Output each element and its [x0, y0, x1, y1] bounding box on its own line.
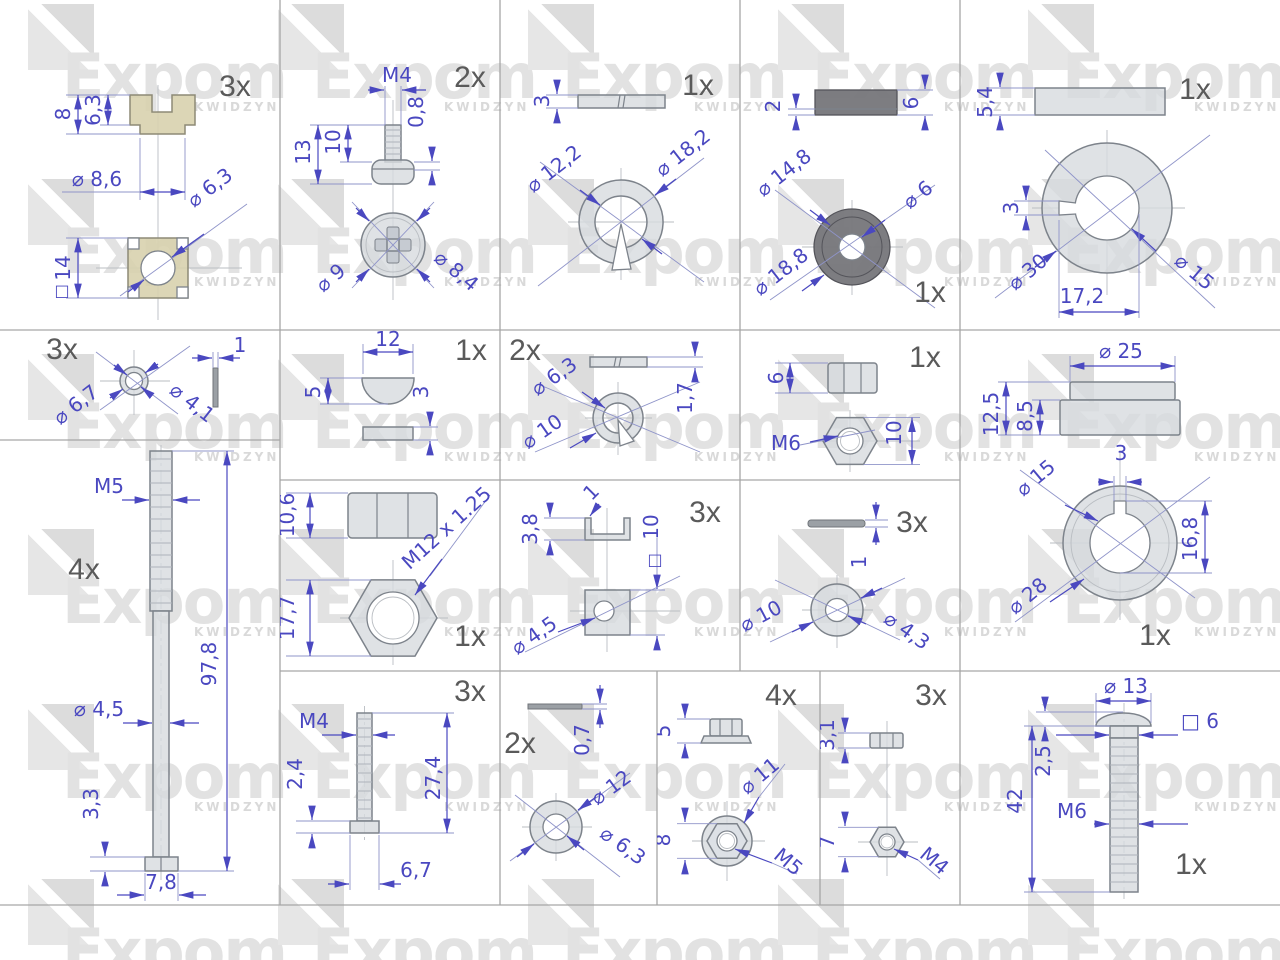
- part-views: [570, 508, 680, 652]
- quantity-label: 4x: [765, 679, 797, 712]
- dim-hole-dia: ⌀ 4,1: [165, 378, 219, 428]
- dim-thickness: 0,7: [570, 724, 594, 756]
- quantity-label: 1x: [1175, 848, 1207, 881]
- quantity-label: 1x: [909, 341, 941, 374]
- dim-thread: M5: [94, 474, 124, 498]
- dim-thickness: 1: [847, 556, 871, 569]
- drawing-spring-washer-6: ⌀ 6,3 ⌀ 10 1,7 2x: [500, 330, 740, 480]
- drawing-pan-head-screw-m4: M4 0,8 13 10 ⌀ 9 ⌀ 8,4 2x: [280, 0, 500, 330]
- dim-width: 17,2: [1060, 284, 1105, 308]
- dim-outer-dia: ⌀ 12: [586, 765, 636, 810]
- quantity-label: 2x: [454, 61, 486, 94]
- part-views: [340, 493, 448, 665]
- dim-thickness: 3: [409, 386, 433, 399]
- dim-height: 6: [764, 372, 788, 385]
- quantity-label: 2x: [504, 727, 536, 760]
- cell-spring-washer-12: 3 ⌀ 12,2 ⌀ 18,2 1x: [500, 0, 740, 330]
- drawing-long-screw-m5: M5 97,8 ⌀ 4,5 3,3 7,8 4x: [0, 440, 280, 905]
- dim-thickness: 1: [578, 480, 604, 505]
- dim-head-height: 2,5: [1031, 745, 1055, 777]
- watermark-brand: Expom: [312, 915, 536, 960]
- cell-hex-nut-m12: 10,6 17,7 M12 x 1.25 1x: [280, 480, 500, 671]
- dim-head-dia: ⌀ 9: [311, 258, 350, 296]
- drawing-spring-washer-12: 3 ⌀ 12,2 ⌀ 18,2 1x: [500, 0, 740, 330]
- dim-keyway: 3: [999, 202, 1023, 215]
- drawing-slotted-square-nut: 8 6,3 ⌀ 8,6 14 □ ⌀ 6,3 3x: [0, 0, 280, 330]
- dim-height: 5: [657, 725, 675, 738]
- quantity-label: 1x: [682, 69, 714, 102]
- quantity-label: 3x: [219, 70, 251, 103]
- part-views: [802, 90, 903, 295]
- quantity-label: 1x: [1179, 73, 1211, 106]
- part-views: [350, 706, 379, 841]
- drawing-hub-washer-25: ⌀ 25 12,5 8,5 3 ⌀ 15 16,8 ⌀ 28 1x: [960, 330, 1280, 671]
- dim-square: 10: [639, 514, 663, 539]
- dim-outer-dia: ⌀ 10: [517, 409, 567, 454]
- dim-height: 5: [301, 386, 325, 399]
- quantity-label: 3x: [896, 506, 928, 539]
- drawing-thin-washer-12: 0,7 ⌀ 12 ⌀ 6,3 2x: [500, 671, 657, 905]
- drawing-small-washer: ⌀ 6,7 ⌀ 4,1 1 3x: [0, 330, 280, 440]
- dim-thread: M6: [1057, 799, 1087, 823]
- drawing-carriage-bolt-m6: ⌀ 13 □ 6 2,5 42 M6 1x: [960, 671, 1280, 905]
- part-views: [858, 721, 918, 876]
- dim-length: 42: [1003, 788, 1027, 813]
- dim-thread: M6: [771, 431, 801, 455]
- dim-shank-dia: ⌀ 4,5: [74, 697, 124, 721]
- dim-thread: M4: [299, 709, 329, 733]
- dim-thickness: 1: [234, 333, 247, 357]
- cell-flange-nut-m5: 5 ⌀ 11 8 M5 4x: [657, 671, 820, 905]
- dim-across-flats: 17,7: [280, 596, 299, 641]
- dim-outer-dia: ⌀ 10: [740, 595, 786, 637]
- cell-hex-nut-m6: 6 M6 10 1x: [740, 330, 960, 480]
- dim-height2: 8,5: [1013, 400, 1037, 432]
- drawing-u-clip: 3,8 1 10 □ ⌀ 4,5 3x: [500, 480, 740, 671]
- dim-top-dia: ⌀ 25: [1099, 339, 1143, 363]
- cell-carriage-bolt-m6: ⌀ 13 □ 6 2,5 42 M6 1x: [960, 671, 1280, 905]
- dim-height: 10,6: [280, 493, 299, 538]
- cell-hex-nut-m4: 3,1 7 M4 3x: [820, 671, 960, 905]
- dim-head-dia: ⌀ 13: [1104, 674, 1148, 698]
- watermark-brand: Expom: [812, 915, 1036, 960]
- dim-outer-dia: ⌀ 28: [1003, 572, 1052, 619]
- watermark-brand: Expom: [562, 915, 786, 960]
- dim-hole-dia: ⌀ 4,5: [507, 611, 562, 659]
- dim-outer-dia: ⌀ 30: [1003, 248, 1052, 295]
- cell-keyed-washer-30: 5,4 3 ⌀ 30 ⌀ 15 17,2 1x: [960, 0, 1280, 330]
- watermark-brand: Expom: [62, 915, 286, 960]
- quantity-label: 3x: [689, 496, 721, 529]
- dim-head-width: 6,7: [400, 858, 432, 882]
- cell-slotted-square-nut: 8 6,3 ⌀ 8,6 14 □ ⌀ 6,3 3x: [0, 0, 280, 330]
- dim-height: 8: [51, 108, 75, 121]
- cell-pan-head-screw-m4: M4 0,8 13 10 ⌀ 9 ⌀ 8,4 2x: [280, 0, 500, 330]
- dim-hole-dia: ⌀ 6: [898, 175, 937, 213]
- part-views: [802, 520, 873, 648]
- drawing-woodruff-key: 12 5 3 1x: [280, 330, 500, 480]
- cell-flat-washer-10: 1 ⌀ 10 ⌀ 4,3 3x: [740, 480, 960, 671]
- drawing-hex-nut-m4: 3,1 7 M4 3x: [820, 671, 960, 905]
- dim-flange-dia: ⌀ 11: [735, 752, 784, 799]
- dim-height: 12,5: [979, 392, 1003, 437]
- dim-height: 6: [899, 97, 923, 110]
- dim-head-height: 2,4: [283, 758, 307, 790]
- dim-outer-dia: ⌀ 18,8: [749, 243, 813, 301]
- cell-thin-washer-12: 0,7 ⌀ 12 ⌀ 6,3 2x: [500, 671, 657, 905]
- dim-thickness: 5,4: [973, 86, 997, 118]
- dim-head-height: 3,3: [79, 788, 103, 820]
- drawing-flange-nut-m5: 5 ⌀ 11 8 M5 4x: [657, 671, 820, 905]
- cell-long-screw-m5: M5 97,8 ⌀ 4,5 3,3 7,8 4x: [0, 440, 280, 905]
- dim-hole-dia: ⌀ 6,3: [183, 163, 238, 212]
- square-symbol: □: [54, 281, 69, 300]
- quantity-label: 1x: [454, 620, 486, 653]
- dim-keyway: 3: [1115, 441, 1128, 465]
- dim-length: 13: [291, 139, 315, 164]
- dim-lip: 0,8: [404, 96, 428, 128]
- quantity-label: 1x: [914, 276, 946, 309]
- cell-rubber-bushing: 2 6 ⌀ 14,8 ⌀ 6 ⌀ 18,8 1x: [740, 0, 960, 330]
- part-views: [361, 100, 425, 300]
- dim-slot: 6,3: [81, 94, 105, 126]
- parts-drawing-sheet: ExpomKWIDZYNExpomKWIDZYNExpomKWIDZYNExpo…: [0, 0, 1280, 960]
- dim-thread: M4: [382, 63, 412, 87]
- quantity-label: 3x: [454, 675, 486, 708]
- dim-hole-dia: ⌀ 4,3: [880, 606, 935, 654]
- cell-hub-washer-25: ⌀ 25 12,5 8,5 3 ⌀ 15 16,8 ⌀ 28 1x: [960, 330, 1280, 671]
- dim-across-flats: 7: [820, 836, 839, 849]
- dim-across-flats: 8: [657, 834, 675, 847]
- cell-small-washer: ⌀ 6,7 ⌀ 4,1 1 3x: [0, 330, 280, 440]
- quantity-label: 4x: [68, 553, 100, 586]
- dim-mid-dia: ⌀ 14,8: [752, 144, 816, 202]
- quantity-label: 2x: [509, 334, 541, 367]
- drawing-flat-washer-10: 1 ⌀ 10 ⌀ 4,3 3x: [740, 480, 960, 671]
- dim-outer-dia: ⌀ 6,7: [49, 380, 103, 430]
- dim-shank: 10: [321, 129, 345, 154]
- quantity-label: 1x: [1139, 619, 1171, 652]
- dim-keyspan: 16,8: [1178, 517, 1202, 562]
- part-views: [1096, 703, 1151, 901]
- dim-hole-dia: ⌀ 6,3: [596, 821, 651, 870]
- dim-outer-dia: ⌀ 8,6: [72, 167, 122, 191]
- watermark-brand: Expom: [1062, 915, 1280, 960]
- part-views: [362, 378, 414, 440]
- dim-lip: 2: [761, 100, 785, 113]
- dim-width: 12: [375, 330, 400, 351]
- dim-length: 97,8: [197, 642, 221, 687]
- dim-across-flats: 10: [882, 420, 906, 445]
- part-views: [568, 95, 674, 280]
- dim-thread: M5: [769, 843, 807, 881]
- dim-thickness: 3: [530, 95, 554, 108]
- cell-u-clip: 3,8 1 10 □ ⌀ 4,5 3x: [500, 480, 740, 671]
- dim-outer-dia: ⌀ 18,2: [651, 124, 715, 182]
- dim-thickness: 1,7: [673, 382, 697, 414]
- cell-screw-m4-27: M4 27,4 2,4 6,7 3x: [280, 671, 500, 905]
- dim-square-neck: □ 6: [1181, 709, 1219, 733]
- drawing-screw-m4-27: M4 27,4 2,4 6,7 3x: [280, 671, 500, 905]
- drawing-hex-nut-m12: 10,6 17,7 M12 x 1.25 1x: [280, 480, 500, 671]
- dim-head-width: 7,8: [145, 870, 177, 894]
- dim-thread: M4: [915, 842, 953, 880]
- dim-square: 14: [51, 255, 75, 280]
- part-views: [1032, 88, 1185, 295]
- drawing-rubber-bushing: 2 6 ⌀ 14,8 ⌀ 6 ⌀ 18,8 1x: [740, 0, 960, 330]
- quantity-label: 3x: [915, 679, 947, 712]
- part-views: [145, 445, 178, 880]
- square-symbol: □: [647, 550, 662, 569]
- dim-hole-dia: ⌀ 15: [1170, 248, 1219, 295]
- dim-height: 3,1: [820, 719, 839, 751]
- quantity-label: 3x: [46, 333, 78, 366]
- dim-height: 3,8: [518, 513, 542, 545]
- drawing-hex-nut-m6: 6 M6 10 1x: [740, 330, 960, 480]
- dim-length: 27,4: [421, 756, 445, 801]
- cell-woodruff-key: 12 5 3 1x: [280, 330, 500, 480]
- quantity-label: 1x: [455, 334, 487, 367]
- part-views: [96, 85, 242, 320]
- cell-spring-washer-6: ⌀ 6,3 ⌀ 10 1,7 2x: [500, 330, 740, 480]
- dim-recess-dia: ⌀ 8,4: [430, 245, 484, 296]
- drawing-keyed-washer-30: 5,4 3 ⌀ 30 ⌀ 15 17,2 1x: [960, 0, 1280, 330]
- part-views: [585, 357, 652, 455]
